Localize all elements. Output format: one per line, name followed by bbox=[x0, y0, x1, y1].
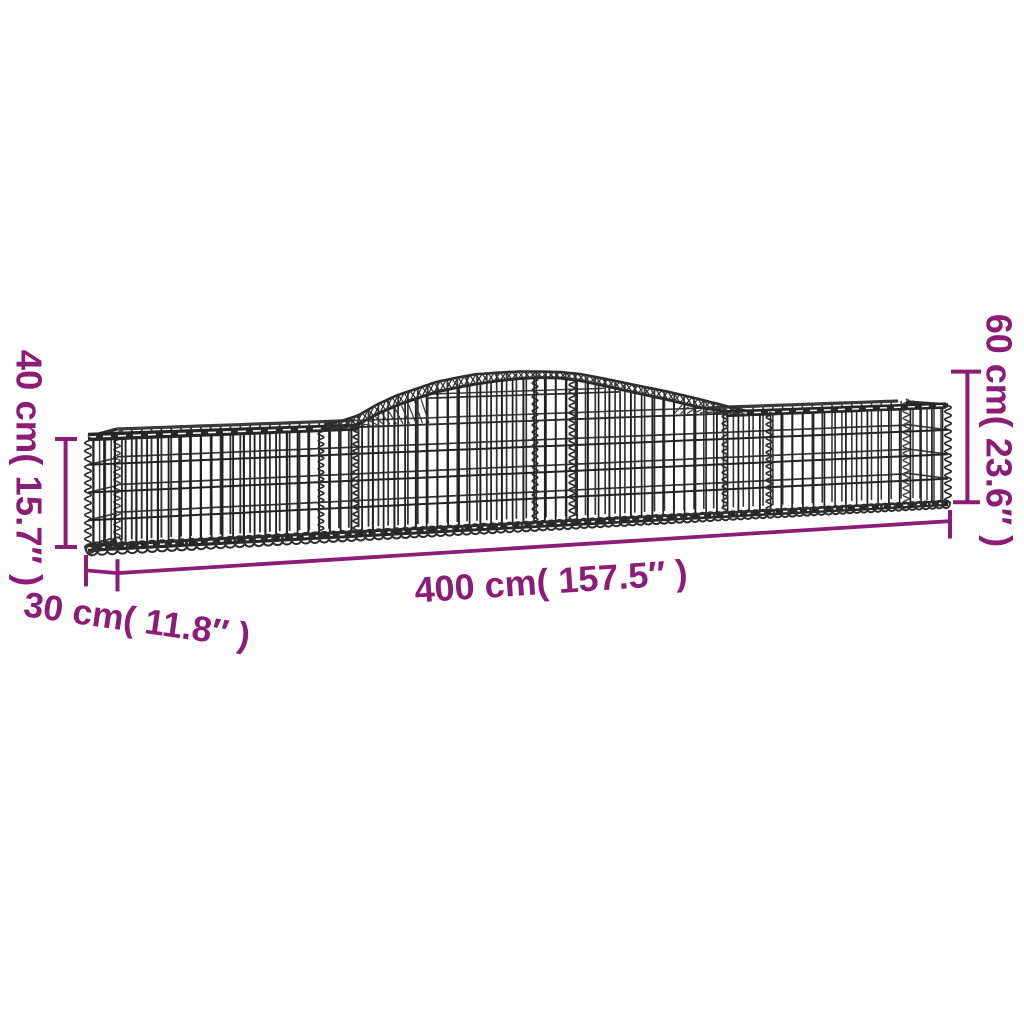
svg-text:30 cm( 11.8″ ): 30 cm( 11.8″ ) bbox=[21, 584, 253, 655]
svg-text:400 cm( 157.5″ ): 400 cm( 157.5″ ) bbox=[413, 551, 689, 610]
svg-text:60 cm( 23.6″ ): 60 cm( 23.6″ ) bbox=[978, 314, 1019, 547]
svg-text:40 cm( 15.7″ ): 40 cm( 15.7″ ) bbox=[8, 350, 49, 587]
